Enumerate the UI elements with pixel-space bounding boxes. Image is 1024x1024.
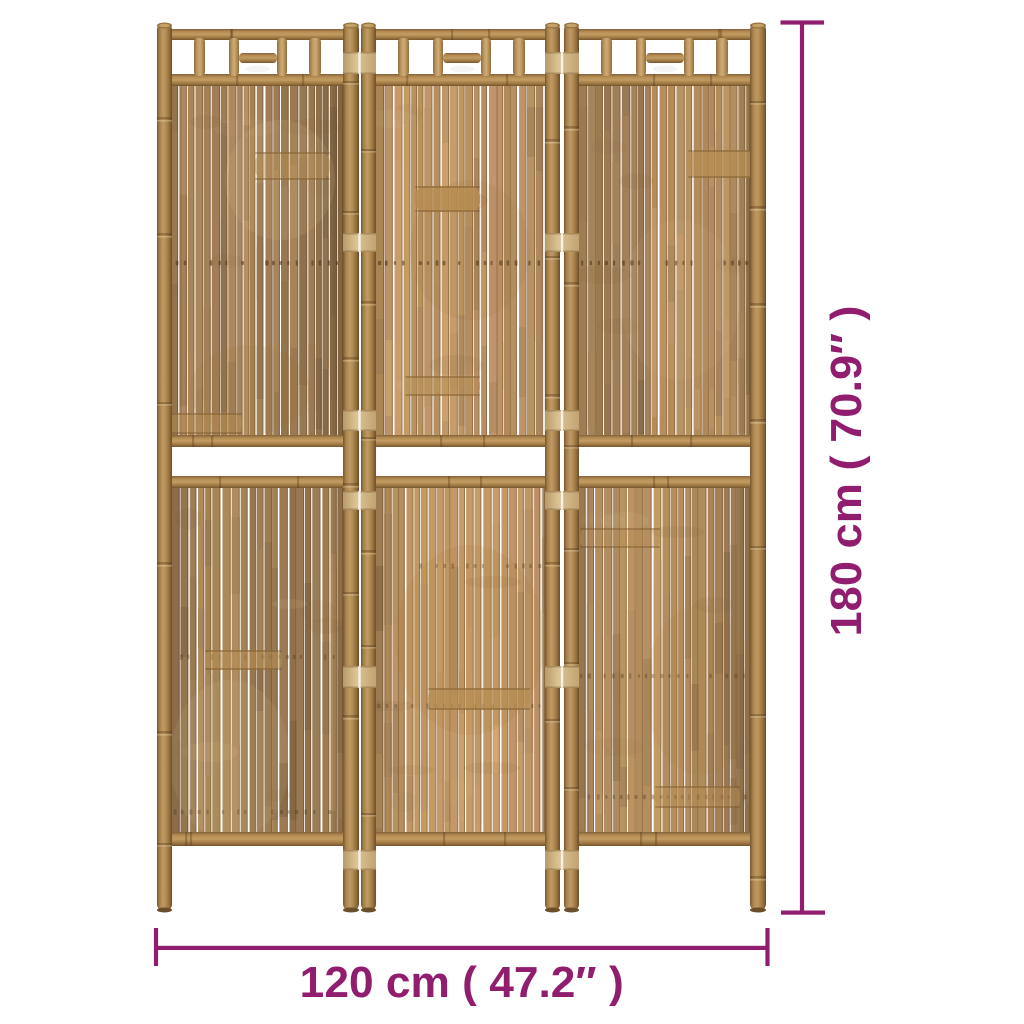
svg-text:120 cm ( 47.2″ ): 120 cm ( 47.2″ ) <box>300 958 624 1007</box>
svg-text:180 cm ( 70.9″ ): 180 cm ( 70.9″ ) <box>822 306 871 637</box>
